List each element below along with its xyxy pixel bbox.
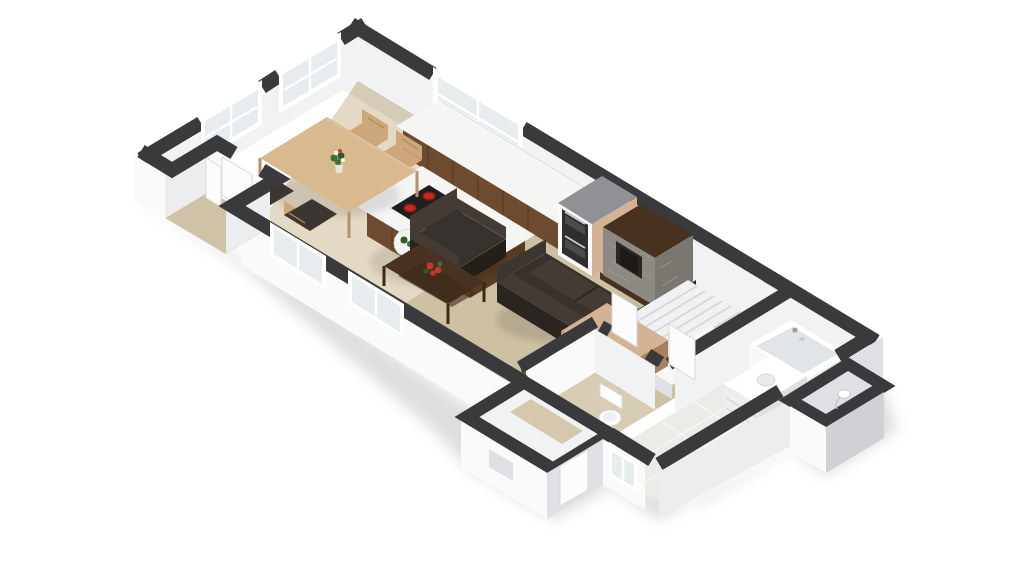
- tub-drain: [799, 337, 805, 341]
- tub-faucet: [792, 327, 797, 332]
- floor-plan-viewport: [0, 0, 1024, 576]
- floor-plan-rendering: [0, 0, 1024, 576]
- burner: [404, 204, 416, 212]
- vanity-sink: [757, 374, 775, 386]
- burner: [423, 192, 435, 200]
- toilet-seat: [603, 412, 617, 422]
- open-door-leaf: [206, 158, 221, 207]
